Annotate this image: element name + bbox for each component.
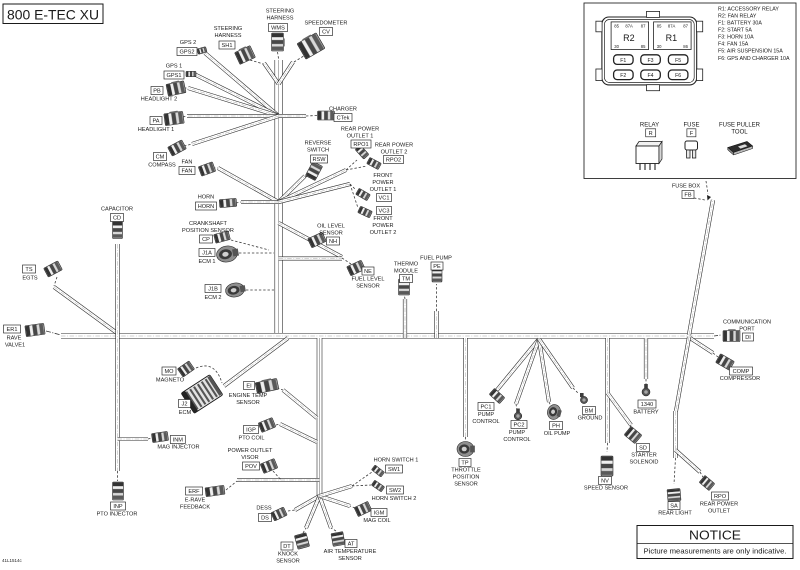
svg-text:GPS 1: GPS 1 [166, 64, 182, 70]
svg-text:FRONT: FRONT [373, 173, 393, 179]
svg-text:SENSOR: SENSOR [338, 556, 362, 562]
svg-text:85: 85 [657, 24, 662, 29]
svg-text:TM: TM [402, 277, 410, 283]
svg-text:F3: HORN 10A: F3: HORN 10A [718, 35, 754, 41]
svg-text:F4: F4 [647, 73, 653, 79]
svg-text:RSW: RSW [312, 157, 326, 163]
svg-text:COMPASS: COMPASS [148, 163, 176, 169]
svg-text:F1: F1 [620, 58, 626, 64]
svg-text:PB: PB [153, 89, 161, 95]
svg-text:EI: EI [246, 384, 252, 390]
svg-text:KNOCK: KNOCK [278, 552, 298, 558]
svg-text:PC2: PC2 [514, 423, 525, 429]
svg-text:WMS: WMS [271, 26, 285, 32]
svg-text:THERMO: THERMO [394, 262, 419, 268]
svg-text:TOOL: TOOL [731, 130, 748, 136]
svg-text:AIR TEMPERATURE: AIR TEMPERATURE [324, 549, 377, 555]
svg-text:CTek: CTek [337, 116, 350, 122]
svg-text:REAR POWER: REAR POWER [375, 143, 413, 149]
svg-text:RELAY: RELAY [640, 123, 659, 129]
svg-text:PH: PH [552, 424, 560, 430]
svg-text:DESS: DESS [256, 506, 272, 512]
svg-text:R2: R2 [623, 33, 635, 43]
svg-text:30: 30 [657, 44, 662, 49]
svg-text:ECM: ECM [179, 410, 192, 416]
svg-text:EGTS: EGTS [22, 276, 37, 282]
svg-text:OUTLET: OUTLET [708, 509, 731, 515]
svg-text:SW1: SW1 [388, 467, 400, 473]
svg-text:J1A: J1A [202, 251, 212, 257]
svg-text:F5: F5 [675, 58, 681, 64]
svg-text:87A: 87A [625, 24, 633, 29]
svg-text:SH1: SH1 [222, 43, 233, 49]
svg-text:PUMP: PUMP [509, 430, 525, 436]
svg-text:FEEDBACK: FEEDBACK [180, 505, 210, 511]
svg-text:THROTTLE: THROTTLE [451, 468, 481, 474]
svg-text:SENSOR: SENSOR [356, 284, 380, 290]
svg-text:HARNESS: HARNESS [266, 16, 293, 22]
svg-text:HEADLIGHT 1: HEADLIGHT 1 [138, 127, 175, 133]
svg-text:FUEL PUMP: FUEL PUMP [420, 256, 452, 262]
svg-text:85: 85 [641, 44, 646, 49]
svg-text:GPS1: GPS1 [167, 73, 182, 79]
svg-text:R2: FAN RELAY: R2: FAN RELAY [718, 13, 757, 19]
svg-text:IGP: IGP [246, 428, 256, 434]
svg-text:FB: FB [684, 193, 691, 199]
svg-text:CV: CV [322, 30, 330, 36]
svg-text:REVERSE: REVERSE [305, 141, 332, 147]
svg-text:MODULE: MODULE [394, 269, 418, 275]
svg-text:COMP: COMP [733, 369, 750, 375]
svg-text:FUSE BOX: FUSE BOX [672, 184, 701, 190]
svg-text:HEADLIGHT 2: HEADLIGHT 2 [141, 97, 178, 103]
svg-text:HORN: HORN [198, 195, 214, 201]
svg-text:DT: DT [283, 544, 291, 550]
svg-text:SW2: SW2 [389, 488, 401, 494]
svg-text:MAG COIL: MAG COIL [363, 518, 390, 524]
svg-text:SENSOR: SENSOR [454, 482, 478, 488]
svg-text:FAN: FAN [182, 169, 193, 175]
svg-text:FRONT: FRONT [373, 216, 393, 222]
svg-text:SPEED SENSOR: SPEED SENSOR [584, 486, 628, 492]
svg-text:REAR POWER: REAR POWER [341, 127, 379, 133]
svg-text:SOLENOID: SOLENOID [630, 460, 659, 466]
svg-text:GPS 2: GPS 2 [180, 40, 196, 46]
svg-text:FUEL LEVEL: FUEL LEVEL [351, 277, 384, 283]
svg-text:COMMUNICATION: COMMUNICATION [723, 320, 771, 326]
svg-text:F5: AIR SUSPENSION 15A: F5: AIR SUSPENSION 15A [718, 49, 783, 55]
svg-text:SWITCH: SWITCH [307, 148, 329, 154]
svg-text:CM: CM [156, 155, 165, 161]
svg-text:VC1: VC1 [379, 196, 390, 202]
svg-text:DS: DS [261, 516, 269, 522]
svg-text:F6: GPS AND CHARGER 10A: F6: GPS AND CHARGER 10A [718, 56, 790, 62]
svg-text:CAPACITOR: CAPACITOR [101, 207, 133, 213]
svg-text:VALVE1: VALVE1 [5, 343, 25, 349]
svg-text:OUTLET 2: OUTLET 2 [381, 150, 408, 156]
svg-text:SD: SD [639, 446, 647, 452]
svg-text:ENGINE TEMP: ENGINE TEMP [229, 393, 268, 399]
svg-text:POSITION SENSOR: POSITION SENSOR [182, 228, 234, 234]
svg-text:PTO INJECTOR: PTO INJECTOR [97, 512, 138, 518]
svg-text:OIL LEVEL: OIL LEVEL [317, 224, 345, 230]
svg-text:800 E-TEC XU: 800 E-TEC XU [7, 6, 99, 22]
svg-text:F1: BATTERY 30A: F1: BATTERY 30A [718, 21, 762, 27]
svg-text:GROUND: GROUND [578, 416, 603, 422]
svg-text:IGM: IGM [374, 511, 385, 517]
svg-text:SPEEDOMETER: SPEEDOMETER [305, 21, 348, 27]
svg-text:HARNESS: HARNESS [214, 33, 241, 39]
svg-text:87: 87 [641, 24, 646, 29]
svg-text:CONTROL: CONTROL [503, 437, 530, 443]
svg-text:J1B: J1B [208, 287, 218, 293]
svg-text:OUTLET 2: OUTLET 2 [370, 230, 397, 236]
svg-text:FUSE PULLER: FUSE PULLER [719, 123, 761, 129]
svg-text:HORN SWITCH 2: HORN SWITCH 2 [372, 496, 417, 502]
svg-text:ECM 2: ECM 2 [204, 295, 221, 301]
svg-text:OUTLET 1: OUTLET 1 [347, 134, 374, 140]
svg-text:OIL PUMP: OIL PUMP [544, 431, 571, 437]
svg-text:POV: POV [245, 464, 257, 470]
svg-text:REAR LIGHT: REAR LIGHT [658, 511, 692, 517]
svg-text:J2: J2 [182, 402, 188, 408]
svg-text:41L1514c: 41L1514c [2, 558, 23, 563]
svg-text:PUMP: PUMP [478, 412, 494, 418]
svg-text:NV: NV [601, 479, 609, 485]
svg-text:TP: TP [461, 461, 468, 467]
svg-text:ER1: ER1 [7, 327, 18, 333]
svg-text:POWER OUTLET: POWER OUTLET [228, 448, 273, 454]
svg-text:STEERING: STEERING [214, 26, 243, 32]
svg-text:POSITION: POSITION [453, 475, 480, 481]
svg-text:HORN SWITCH 1: HORN SWITCH 1 [374, 458, 419, 464]
svg-text:CONTROL: CONTROL [472, 419, 499, 425]
svg-text:PA: PA [152, 119, 159, 125]
svg-text:F3: F3 [647, 58, 653, 64]
svg-text:ERF: ERF [188, 489, 200, 495]
svg-text:F2: START 5A: F2: START 5A [718, 28, 752, 34]
svg-text:MO: MO [164, 369, 174, 375]
svg-text:CHARGER: CHARGER [329, 107, 357, 113]
svg-text:87: 87 [683, 24, 688, 29]
svg-text:CP: CP [202, 237, 210, 243]
svg-text:HORN: HORN [198, 204, 214, 210]
svg-text:30: 30 [614, 44, 619, 49]
svg-text:MAG INJECTOR: MAG INJECTOR [157, 445, 199, 451]
svg-text:FAN: FAN [182, 160, 193, 166]
svg-text:CRANKSHAFT: CRANKSHAFT [189, 221, 227, 227]
svg-text:PORT: PORT [739, 327, 755, 333]
svg-text:87A: 87A [668, 24, 676, 29]
svg-text:VC3: VC3 [379, 209, 390, 215]
svg-text:MAGNETO: MAGNETO [156, 378, 185, 384]
svg-text:PE: PE [433, 264, 441, 270]
svg-text:STARTER: STARTER [631, 453, 657, 459]
svg-text:OUTLET 1: OUTLET 1 [370, 187, 397, 193]
svg-text:GPS2: GPS2 [180, 50, 195, 56]
svg-text:ECM 1: ECM 1 [198, 259, 215, 265]
svg-text:F4: FAN 15A: F4: FAN 15A [718, 42, 749, 48]
svg-text:BM: BM [585, 409, 594, 415]
svg-text:E-RAVE: E-RAVE [185, 498, 206, 504]
svg-text:TS: TS [25, 267, 32, 273]
svg-text:SENSOR: SENSOR [276, 559, 300, 565]
svg-text:COMPRESSOR: COMPRESSOR [720, 376, 760, 382]
svg-text:INM: INM [173, 438, 184, 444]
svg-text:PC1: PC1 [481, 405, 492, 411]
svg-text:Picture measurements are only: Picture measurements are only indicative… [644, 547, 787, 556]
svg-text:BATTERY: BATTERY [633, 410, 659, 416]
svg-text:INP: INP [113, 504, 123, 510]
svg-text:F: F [690, 131, 694, 137]
svg-text:86: 86 [683, 44, 688, 49]
svg-text:F6: F6 [675, 73, 681, 79]
svg-text:NOTICE: NOTICE [689, 529, 741, 543]
svg-text:RPO: RPO [714, 494, 727, 500]
svg-text:POWER: POWER [372, 223, 393, 229]
svg-text:RAVE: RAVE [7, 336, 22, 342]
svg-text:POWER: POWER [372, 180, 393, 186]
svg-text:VISOR: VISOR [241, 455, 258, 461]
svg-text:F2: F2 [620, 73, 626, 79]
svg-text:R1: ACCESSORY RELAY: R1: ACCESSORY RELAY [718, 6, 779, 12]
svg-text:SA: SA [670, 504, 678, 510]
svg-text:R: R [649, 131, 653, 137]
svg-text:DI: DI [745, 335, 751, 341]
svg-text:RPO1: RPO1 [353, 142, 368, 148]
svg-text:CD: CD [113, 216, 121, 222]
svg-text:STEERING: STEERING [266, 9, 295, 15]
svg-text:PTO COIL: PTO COIL [238, 436, 264, 442]
svg-text:SENSOR: SENSOR [319, 231, 343, 237]
svg-text:1340: 1340 [641, 402, 653, 408]
svg-text:NE: NE [364, 269, 372, 275]
svg-text:85: 85 [614, 24, 619, 29]
svg-text:RPO2: RPO2 [386, 158, 401, 164]
svg-text:AT: AT [348, 542, 355, 548]
svg-text:REAR POWER: REAR POWER [700, 502, 738, 508]
svg-text:FUSE: FUSE [683, 123, 699, 129]
svg-text:R1: R1 [666, 33, 678, 43]
svg-text:NH: NH [329, 239, 337, 245]
svg-text:SENSOR: SENSOR [236, 400, 260, 406]
